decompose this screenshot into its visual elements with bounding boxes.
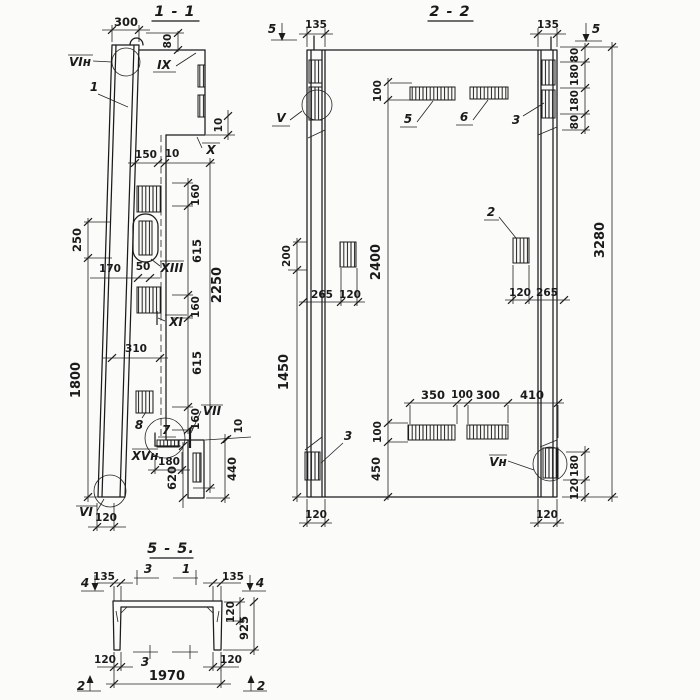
dim-120-bottom-left: 120 [305,509,327,521]
dim-620: 620 [165,466,179,490]
section-1-1-title: 1 - 1 [154,4,195,20]
section-5-5-view: 5 - 5. 4 4 3 1 3 2 [77,541,267,693]
dim-1970: 1970 [149,669,185,684]
dim-180-a: 180 [569,64,581,86]
dim-120-bottom-left: 120 [94,654,116,666]
section-2-2-title: 2 - 2 [429,4,470,20]
dim-120: 120 [95,512,117,524]
cut-label-5-right: 5 [592,22,600,36]
item-label-6: 6 [460,110,468,124]
dim-2250: 2250 [210,267,225,303]
dim-300: 300 [114,15,138,29]
dim-100-chain: 100 [451,389,473,401]
dim-200: 200 [281,245,293,267]
dim-50: 50 [136,261,151,273]
cut-label-4-right: 4 [255,576,264,590]
dim-440: 440 [225,457,239,481]
dim-410: 410 [520,388,544,402]
dim-300: 300 [476,388,500,402]
detail-label-xv-n: XVн [131,449,159,463]
dim-120-br: 120 [569,478,581,500]
dim-10-c: 10 [233,419,245,434]
dim-180-br: 180 [569,455,581,477]
lifting-loop [130,38,143,45]
item-label-3-right: 3 [512,113,520,127]
dim-135-left: 135 [93,571,115,583]
dim-135-left: 135 [305,19,327,31]
dim-10-a: 10 [165,148,180,160]
dim-100-bottom: 100 [372,421,384,443]
item-label-7: 7 [162,423,171,437]
up-arrow-icon [87,675,94,683]
dim-1450: 1450 [277,354,292,390]
cut-label-3-top: 3 [144,562,152,576]
dim-170: 170 [99,263,121,275]
dim-120-bottom-right: 120 [220,654,242,666]
section-2-2-view: 2 - 2 [268,4,618,527]
dim-135-right: 135 [537,19,559,31]
item-label-2: 2 [487,205,495,219]
detail-label-vi: VI [79,505,93,519]
dim-160-a: 160 [190,184,202,206]
down-arrow-icon [92,583,99,591]
dim-100-top: 100 [372,80,384,102]
dim-160-c: 160 [190,408,202,430]
detail-label-x: X [205,143,216,157]
dim-120-right: 120 [225,601,237,623]
dim-160-b: 160 [190,296,202,318]
dim-450: 450 [369,457,383,481]
cut-label-4-left: 4 [80,576,89,590]
item-label-3-left: 3 [344,429,352,443]
engineering-drawing-sheet: 1 - 1 [0,0,700,700]
dim-150: 150 [135,149,157,161]
dim-135-right: 135 [222,571,244,583]
detail-label-xi: XI [168,315,183,329]
item-label-5: 5 [404,112,412,126]
cut-label-5-left: 5 [268,22,276,36]
cut-label-2-right: 2 [257,679,265,693]
label-leader-lines [272,100,544,470]
channel-profile-outline [113,601,222,650]
item-label-1: 1 [90,80,98,94]
dim-80: 80 [162,34,174,49]
dim-120-left: 120 [339,289,361,301]
dim-10-b: 10 [213,118,225,133]
down-arrow-icon [247,583,254,591]
item-label-8: 8 [135,418,143,432]
detail-label-vi-n: VIн [69,55,91,69]
dim-615-b: 615 [190,351,204,375]
dim-925: 925 [237,616,251,640]
section-5-5-title: 5 - 5. [147,541,195,557]
dim-265-right: 265 [536,287,558,299]
detail-label-vii: VII [203,404,222,418]
dim-180-b: 180 [569,90,581,112]
detail-label-xiii: XIII [160,261,184,275]
detail-label-v: V [276,111,287,125]
dim-250: 250 [70,228,84,252]
dim-2400: 2400 [369,244,384,280]
up-arrow-icon [248,675,255,683]
dim-615-a: 615 [190,239,204,263]
detail-circles [302,90,567,481]
dim-120-mid-right: 120 [509,287,531,299]
dim-3280: 3280 [593,222,608,258]
dim-310: 310 [125,343,147,355]
dim-1800: 1800 [69,362,84,398]
section-1-1-view: 1 - 1 [68,4,251,531]
dim-265-left: 265 [311,289,333,301]
dim-80-b: 80 [569,115,581,130]
drawing-svg: 1 - 1 [0,0,700,700]
dim-350: 350 [421,388,445,402]
dim-120-bottom-right: 120 [536,509,558,521]
cut-label-3-bottom: 3 [141,655,149,669]
dim-80-a: 80 [569,48,581,63]
cut-label-2-left: 2 [77,679,85,693]
detail-label-ix: IX [157,58,171,72]
detail-label-v-n: Vн [489,455,507,469]
cut-label-1-top: 1 [182,562,190,576]
